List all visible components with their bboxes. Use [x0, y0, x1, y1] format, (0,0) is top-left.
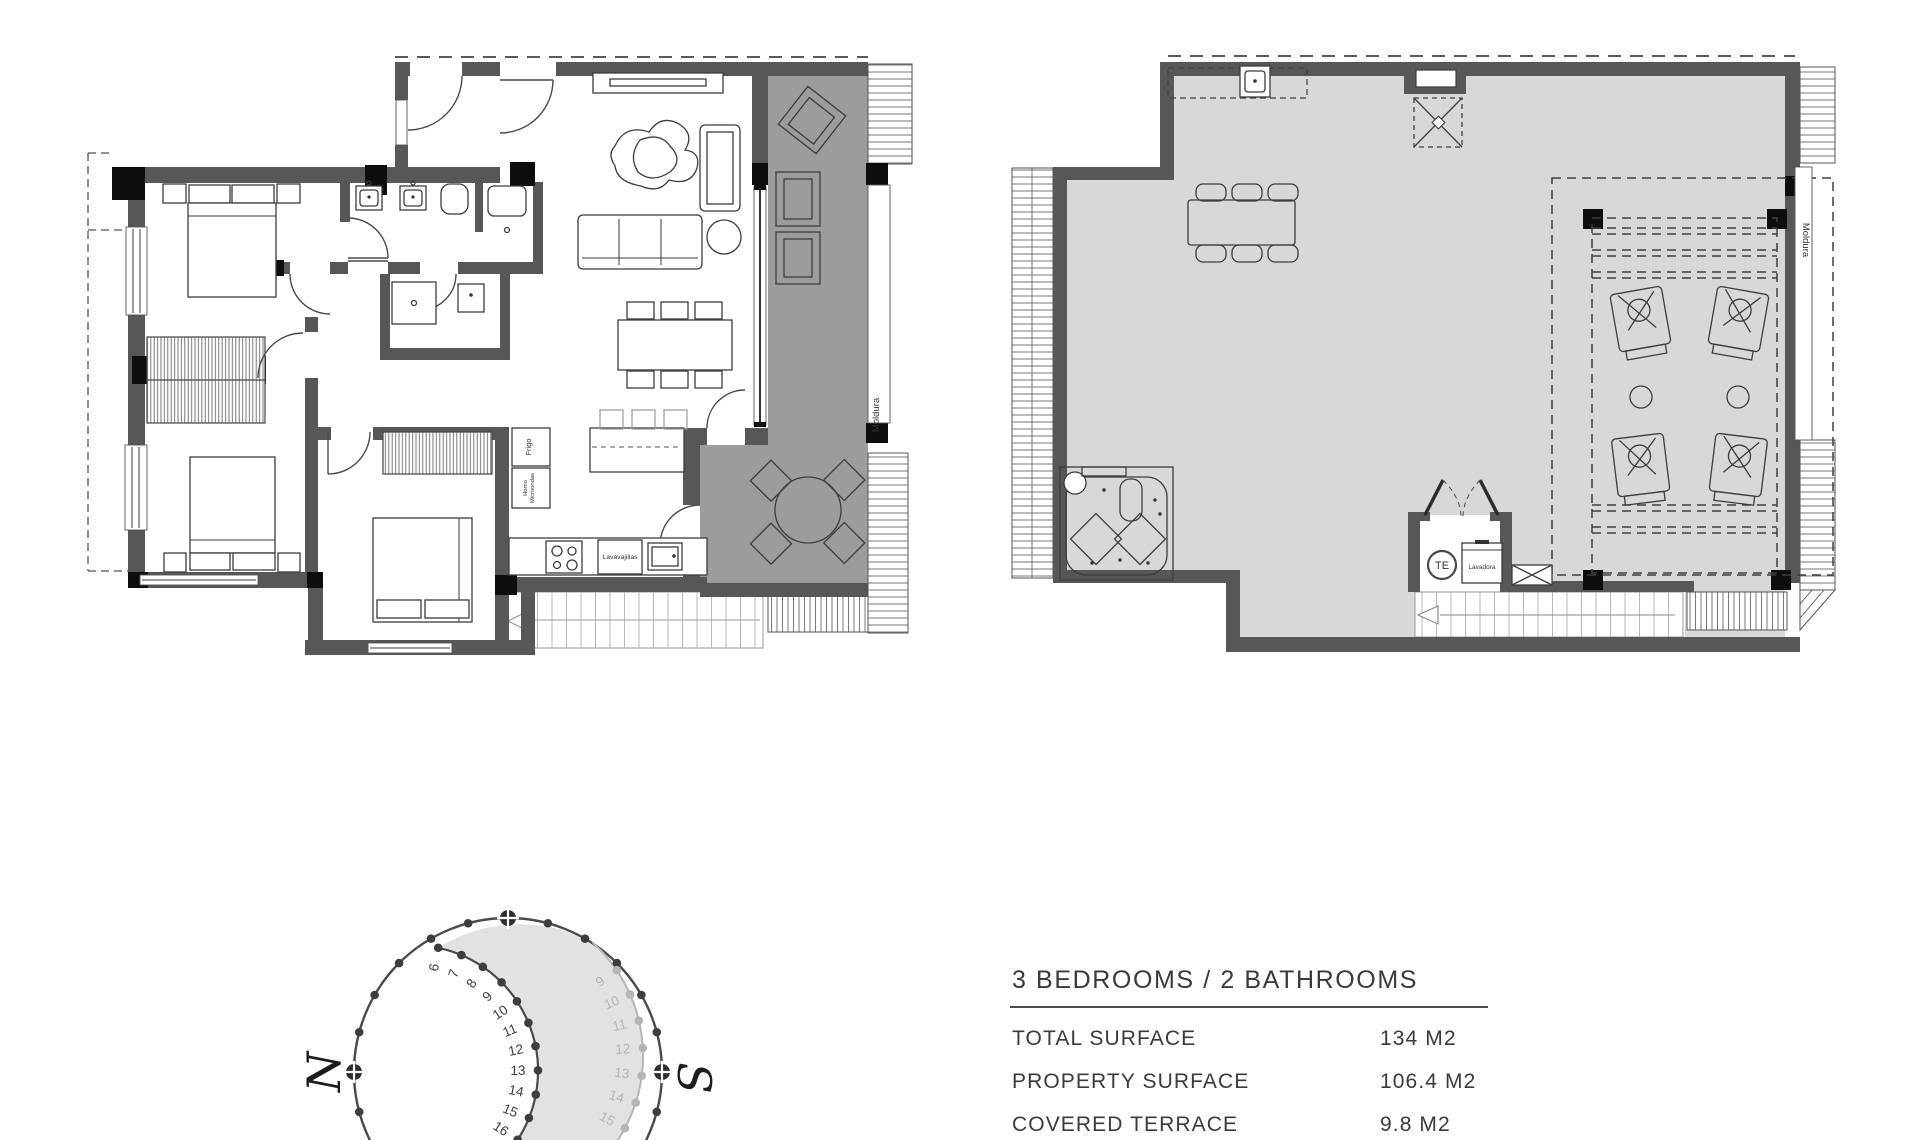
svg-text:12: 12: [507, 1041, 525, 1059]
svg-text:15: 15: [501, 1101, 521, 1121]
svg-text:13: 13: [510, 1063, 525, 1078]
svg-text:6: 6: [426, 962, 442, 972]
bedroom-2-bed: [164, 457, 300, 572]
spec-label: PROPERTY SURFACE: [1012, 1070, 1380, 1094]
spec-value: 134 M2: [1380, 1027, 1502, 1051]
floor-plan-solarium: TE Lavadora Moldura: [1000, 40, 1845, 665]
spec-table: 3 BEDROOMS / 2 BATHROOMS TOTAL SURFACE 1…: [1010, 966, 1502, 1137]
water-heater-label: TE: [1435, 560, 1449, 572]
floorplan-sheet: Moldura Frigo Horno Microondas Lavavajil…: [0, 0, 1920, 1140]
moldura-strip: Moldura: [1795, 167, 1812, 440]
compass-sun-path: N S 6789101112131415169101112131415: [280, 908, 750, 1140]
microwave-label: Microondas: [530, 473, 536, 503]
svg-text:11: 11: [501, 1021, 520, 1040]
living-room: [578, 73, 741, 388]
spec-value: 9.8 M2: [1380, 1113, 1502, 1137]
svg-text:13: 13: [613, 1065, 630, 1082]
spec-row-total: TOTAL SURFACE 134 M2: [1010, 1027, 1502, 1051]
internal-stairs: [1415, 592, 1683, 637]
spec-row-terrace: COVERED TERRACE 9.8 M2: [1010, 1113, 1502, 1137]
spec-value: 106.4 M2: [1380, 1070, 1502, 1094]
svg-text:9: 9: [479, 988, 495, 1004]
fridge-label: Frigo: [524, 438, 533, 455]
svg-text:16: 16: [491, 1118, 512, 1139]
washer-icon: [1462, 543, 1502, 583]
oven-label: Horno: [523, 480, 529, 496]
spec-row-property: PROPERTY SURFACE 106.4 M2: [1010, 1070, 1502, 1094]
moldura-strip: Moldura: [868, 185, 890, 432]
chimney: [1404, 62, 1466, 94]
kitchen: [509, 410, 707, 575]
spec-divider: [1010, 1006, 1488, 1008]
dishwasher-label: Lavavajillas: [602, 554, 638, 561]
svg-text:14: 14: [507, 1082, 525, 1100]
north-label: N: [297, 1050, 351, 1093]
svg-text:7: 7: [445, 967, 462, 980]
floor-plan-main: Moldura Frigo Horno Microondas Lavavajil…: [60, 0, 930, 680]
bedroom-1-bed: [163, 184, 300, 297]
moldura-label: Moldura: [871, 397, 882, 432]
spec-label: COVERED TERRACE: [1012, 1113, 1380, 1137]
washer-label: Lavadora: [1468, 564, 1495, 571]
svg-text:12: 12: [615, 1041, 631, 1057]
moldura-label: Moldura: [1800, 223, 1811, 258]
spec-heading: 3 BEDROOMS / 2 BATHROOMS: [1012, 966, 1502, 995]
svg-text:8: 8: [463, 976, 480, 991]
bedroom-3-bed: [373, 518, 472, 622]
svg-text:10: 10: [490, 1002, 511, 1023]
spec-label: TOTAL SURFACE: [1012, 1027, 1380, 1051]
sun-band: [438, 924, 643, 1140]
south-label: S: [667, 1062, 721, 1094]
